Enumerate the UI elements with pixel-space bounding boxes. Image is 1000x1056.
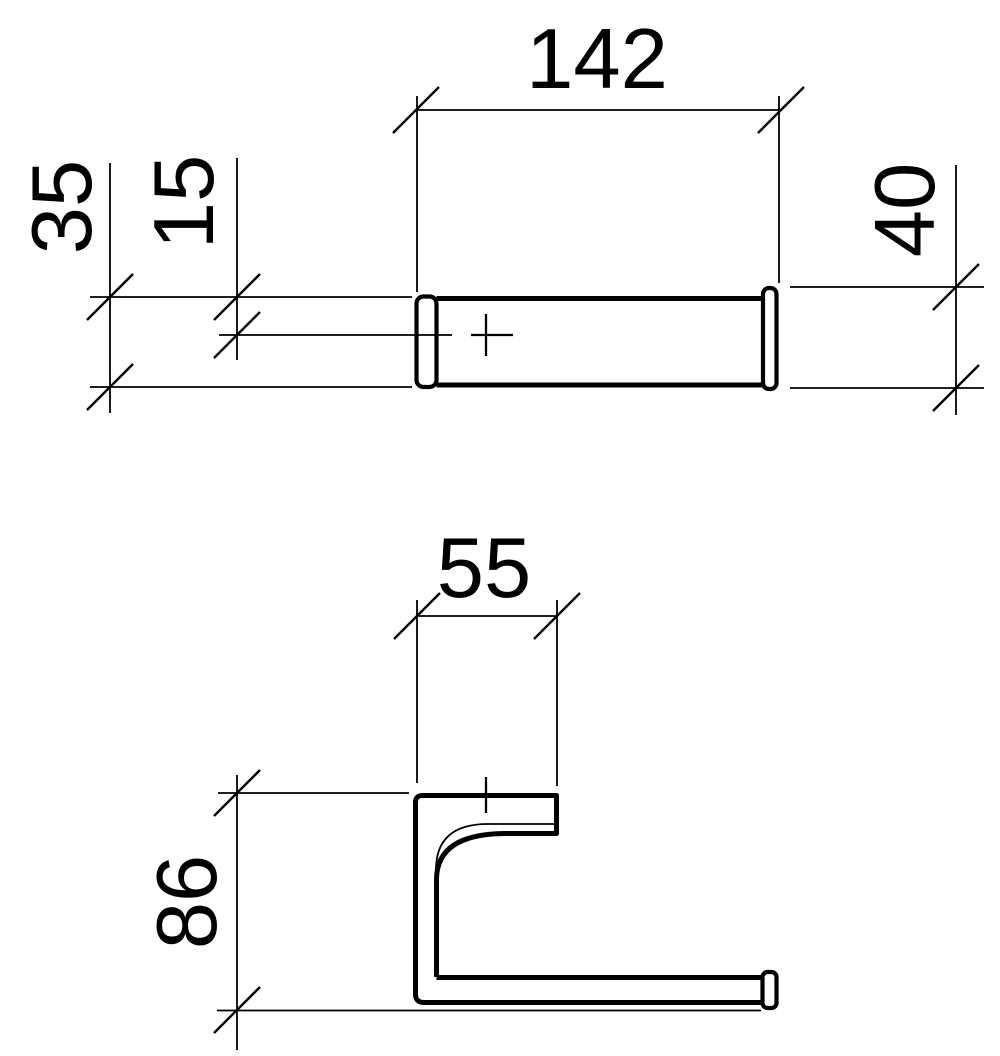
plan-view: 142 35 15 40 [15,12,984,415]
plan-view-object [417,288,777,389]
dimension-142: 142 [393,12,804,133]
dim-86-label: 86 [140,855,235,950]
dim-40-label: 40 [858,163,953,258]
dimension-55: 55 [394,521,580,639]
side-view: 55 86 [140,521,777,1050]
bracket-outline [416,796,557,1003]
drawing-canvas: 142 35 15 40 [0,0,1000,1056]
dimension-15: 15 [137,155,260,360]
center-mark [471,314,513,356]
dimension-86: 86 [140,770,260,1050]
dim-142-label: 142 [526,12,668,107]
side-view-object [416,777,777,1008]
dim-15-label: 15 [137,155,232,250]
dimension-40: 40 [858,163,979,415]
bar-right-end-cap [763,288,777,389]
center-mark-side [466,777,508,813]
side-view-extension-lines [217,600,761,1011]
bar-end-cap-side [763,972,777,1008]
dim-35-label: 35 [15,160,110,255]
technical-drawing: 142 35 15 40 [0,0,1000,1056]
bar-left-end-cap [417,297,437,388]
dim-55-label: 55 [437,521,532,616]
dimension-35: 35 [15,160,133,413]
